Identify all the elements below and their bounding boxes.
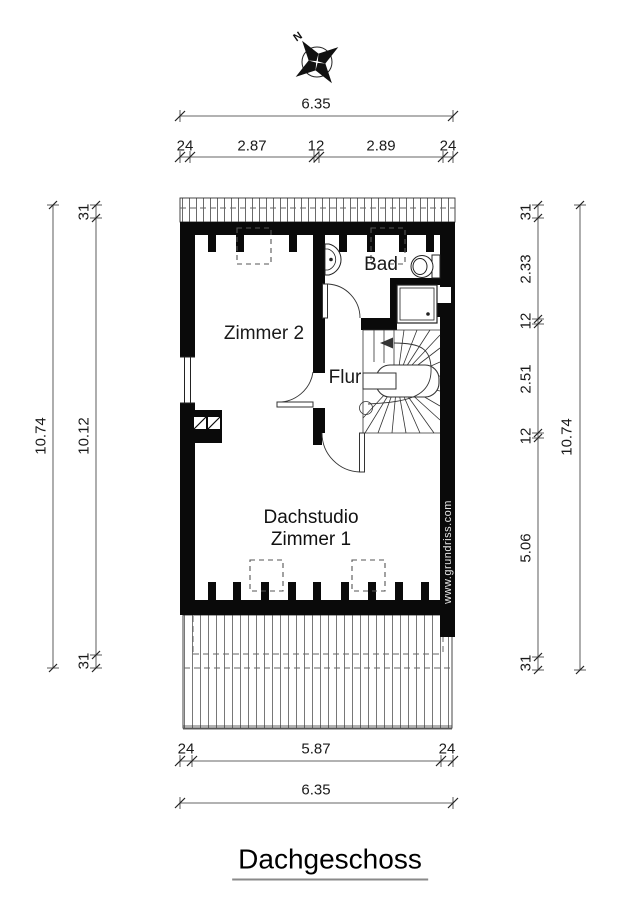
dim-right-seg: 12: [518, 313, 535, 330]
top-roof-overhang: [180, 198, 455, 222]
dim-top-seg: 24: [177, 138, 194, 155]
dim-bottom-overall: 6.35: [301, 782, 330, 799]
dim-bottom-seg: 5.87: [301, 741, 330, 758]
staircase: [360, 330, 441, 433]
shower-icon: [397, 285, 437, 323]
dim-right-overall: 10.74: [559, 418, 576, 456]
dim-right-seg: 2.51: [518, 364, 535, 393]
dim-right-seg: 31: [518, 204, 535, 221]
dim-left-overall: 10.74: [33, 417, 50, 455]
dim-right-seg: 2.33: [518, 254, 535, 283]
window-symbol: [180, 357, 195, 403]
bottom-roof-area: [183, 615, 452, 729]
dim-top-seg: 2.87: [237, 138, 266, 155]
dim-bottom-seg: 24: [178, 741, 195, 758]
door-zimmer2: [277, 372, 313, 407]
dim-bottom-seg: 24: [439, 741, 456, 758]
dim-right-seg: 31: [518, 655, 535, 672]
floor-plan-page: N 6.35 24 2.87 12 2.89 24 24 5.87 24 6.3…: [0, 0, 634, 900]
dim-top-seg: 2.89: [366, 138, 395, 155]
floor-plan-drawing: [0, 0, 634, 900]
sink-icon: [325, 244, 341, 275]
dim-right-seg: 5.06: [518, 533, 535, 562]
door-bad: [323, 284, 361, 318]
dim-left-seg: 10.12: [76, 417, 93, 455]
toilet-icon: [411, 255, 440, 278]
compass-rose-icon: [281, 26, 353, 98]
dim-top-overall: 6.35: [301, 96, 330, 113]
dim-top-seg: 24: [440, 138, 457, 155]
dim-top-seg: 12: [308, 138, 325, 155]
chimney: [180, 410, 222, 443]
room-label-zimmer2: Zimmer 2: [224, 323, 304, 345]
dim-left-seg: 31: [76, 653, 93, 670]
dim-right-seg: 12: [518, 428, 535, 445]
watermark-text: www.grundriss.com: [442, 500, 454, 604]
room-label-flur: Flur: [329, 367, 362, 389]
room-label-bad: Bad: [364, 254, 398, 276]
room-label-dachstudio: Dachstudio Zimmer 1: [263, 507, 358, 551]
dim-left-seg: 31: [76, 204, 93, 221]
page-title: Dachgeschoss: [232, 844, 428, 881]
